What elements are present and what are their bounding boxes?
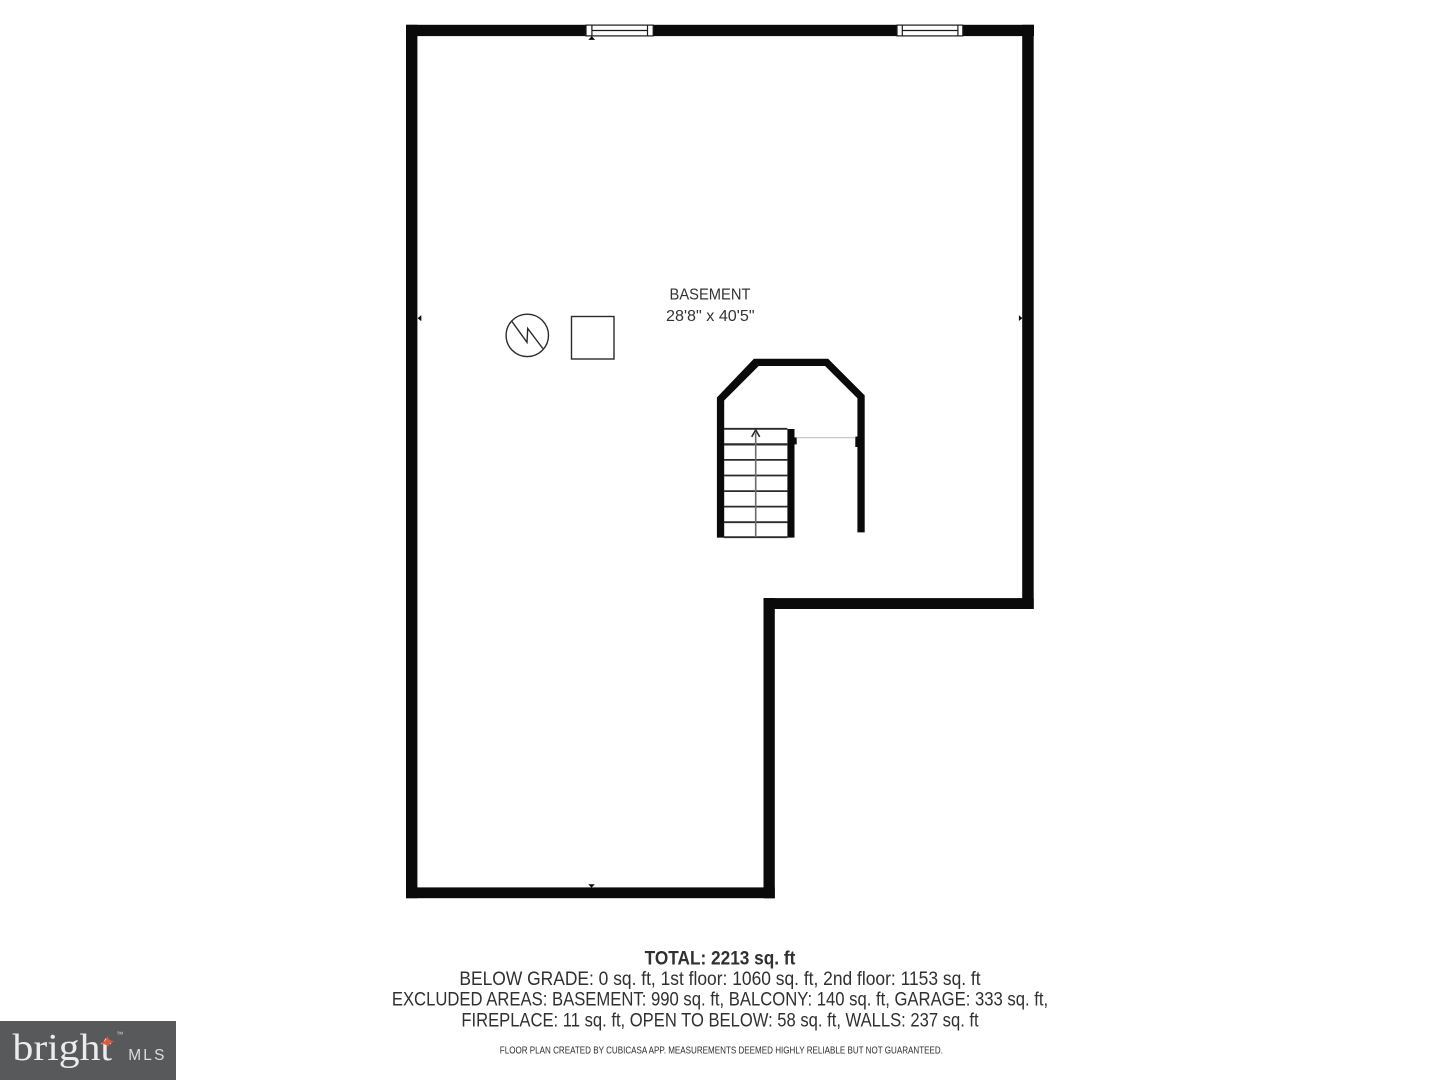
svg-text:TOTAL: 2213 sq. ft: TOTAL: 2213 sq. ft xyxy=(645,949,796,970)
svg-text:bright: bright xyxy=(13,1027,113,1069)
svg-text:™: ™ xyxy=(116,1032,123,1039)
svg-text:BELOW GRADE: 0 sq. ft, 1st flo: BELOW GRADE: 0 sq. ft, 1st floor: 1060 s… xyxy=(459,969,981,990)
svg-text:28'8" x 40'5": 28'8" x 40'5" xyxy=(666,308,755,325)
svg-text:MLS: MLS xyxy=(128,1047,167,1064)
svg-text:EXCLUDED AREAS: BASEMENT: 990: EXCLUDED AREAS: BASEMENT: 990 sq. ft, BA… xyxy=(392,990,1048,1011)
svg-text:FLOOR PLAN CREATED BY CUBICASA: FLOOR PLAN CREATED BY CUBICASA APP. MEAS… xyxy=(500,1046,943,1057)
svg-text:BASEMENT: BASEMENT xyxy=(670,286,751,303)
svg-text:FIREPLACE: 11 sq. ft, OPEN TO: FIREPLACE: 11 sq. ft, OPEN TO BELOW: 58 … xyxy=(461,1010,979,1031)
